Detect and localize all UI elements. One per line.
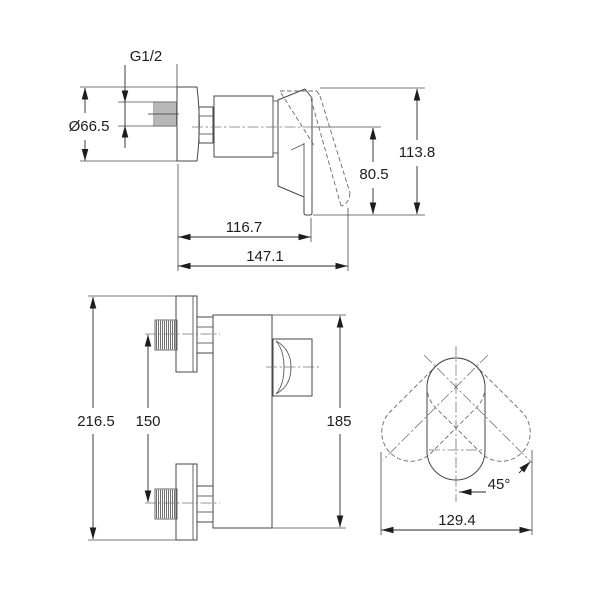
dimension-height-total: 113.8 [313, 88, 435, 215]
dimension-swing-angle: 45° [459, 462, 530, 493]
dim-label-inlet-spacing: 150 [135, 413, 160, 430]
dimension-flange-diameter: Ø66.5 [69, 87, 177, 161]
handle-closed-side [278, 89, 312, 215]
dim-label-swing-width: 129.4 [438, 512, 476, 529]
dim-label-body-height: 185 [326, 413, 351, 430]
handle-open-side [280, 91, 350, 206]
front-view: 216.5 150 185 [77, 296, 351, 540]
dim-label-handle-drop: 80.5 [359, 166, 388, 183]
dimension-handle-drop: 80.5 [313, 127, 389, 214]
dim-label-swing-angle: 45° [488, 476, 511, 493]
inlet-thread-side [148, 102, 179, 126]
technical-drawing-canvas: G1/2 Ø66.5 113.8 80.5 [0, 0, 600, 600]
dim-label-height-overall: 216.5 [77, 413, 115, 430]
wall-flange-side [177, 87, 199, 161]
mixer-body-front [213, 315, 272, 528]
bottom-inlet-assembly [145, 464, 220, 540]
shower-mixer-drawing: G1/2 Ø66.5 113.8 80.5 [0, 0, 600, 600]
dim-label-height-total: 113.8 [399, 144, 435, 161]
dimension-inlet-spacing: 150 [135, 335, 160, 502]
dimension-depth-body: 116.7 [178, 218, 311, 242]
dim-label-depth-total: 147.1 [246, 248, 284, 265]
mixer-body-side [214, 96, 273, 157]
handle-front [266, 339, 320, 396]
hex-nut-side [199, 107, 213, 143]
top-view: 45° 129.4 [370, 346, 543, 535]
dim-label-flange-diameter: Ø66.5 [69, 118, 110, 135]
dimension-height-overall: 216.5 [77, 296, 176, 540]
side-view: G1/2 Ø66.5 113.8 80.5 [69, 48, 436, 271]
top-inlet-assembly [145, 296, 220, 372]
dim-label-depth-body: 116.7 [226, 219, 262, 236]
dimension-depth-total: 147.1 [178, 164, 348, 271]
dimension-thread-size: G1/2 [118, 48, 177, 148]
dim-label-thread-size: G1/2 [130, 48, 163, 65]
